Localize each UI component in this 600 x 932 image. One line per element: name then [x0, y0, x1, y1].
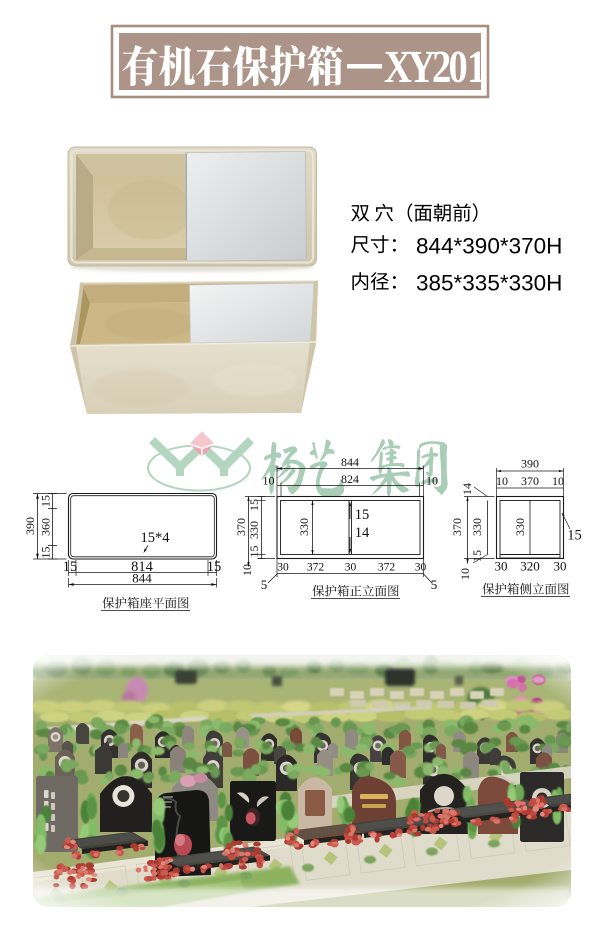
svg-text:385*335*330H: 385*335*330H: [416, 271, 562, 296]
svg-text:372: 372: [307, 562, 325, 574]
svg-text:10: 10: [458, 568, 472, 580]
svg-text:14: 14: [460, 483, 474, 495]
svg-text:372: 372: [378, 562, 396, 574]
svg-text:30: 30: [345, 562, 357, 574]
svg-text:5: 5: [431, 577, 438, 592]
svg-text:15: 15: [355, 507, 370, 523]
svg-text:30: 30: [415, 562, 427, 574]
svg-text:10: 10: [496, 474, 508, 488]
svg-text:30: 30: [277, 562, 289, 574]
svg-text:15: 15: [247, 499, 261, 511]
svg-text:15: 15: [39, 547, 53, 559]
svg-text:360: 360: [39, 518, 53, 536]
svg-text:824: 824: [341, 472, 359, 486]
svg-text:844*390*370H: 844*390*370H: [416, 234, 562, 259]
svg-text:15: 15: [63, 559, 78, 575]
svg-text:10: 10: [552, 474, 564, 488]
svg-text:390: 390: [23, 517, 37, 535]
svg-text:320: 320: [520, 559, 540, 574]
svg-text:10: 10: [426, 474, 438, 488]
svg-text:330: 330: [297, 518, 311, 536]
svg-text:30: 30: [554, 559, 567, 574]
svg-text:15*4: 15*4: [141, 530, 171, 546]
svg-text:844: 844: [341, 455, 359, 469]
svg-text:14: 14: [355, 525, 370, 541]
svg-text:15: 15: [207, 559, 222, 575]
svg-text:370: 370: [450, 518, 464, 536]
svg-text:10: 10: [263, 474, 275, 488]
svg-text:15: 15: [567, 528, 582, 544]
svg-text:15: 15: [470, 550, 484, 562]
svg-text:15: 15: [247, 546, 261, 558]
svg-text:370: 370: [234, 518, 248, 536]
svg-text:330: 330: [470, 518, 484, 536]
svg-text:390: 390: [521, 457, 539, 471]
svg-text:330: 330: [247, 521, 261, 539]
svg-text:15: 15: [39, 495, 53, 507]
svg-text:844: 844: [132, 571, 152, 586]
svg-text:330: 330: [513, 518, 527, 536]
svg-text:10: 10: [240, 564, 254, 576]
svg-text:370: 370: [521, 474, 539, 488]
svg-text:30: 30: [495, 559, 508, 574]
svg-text:5: 5: [261, 577, 268, 592]
